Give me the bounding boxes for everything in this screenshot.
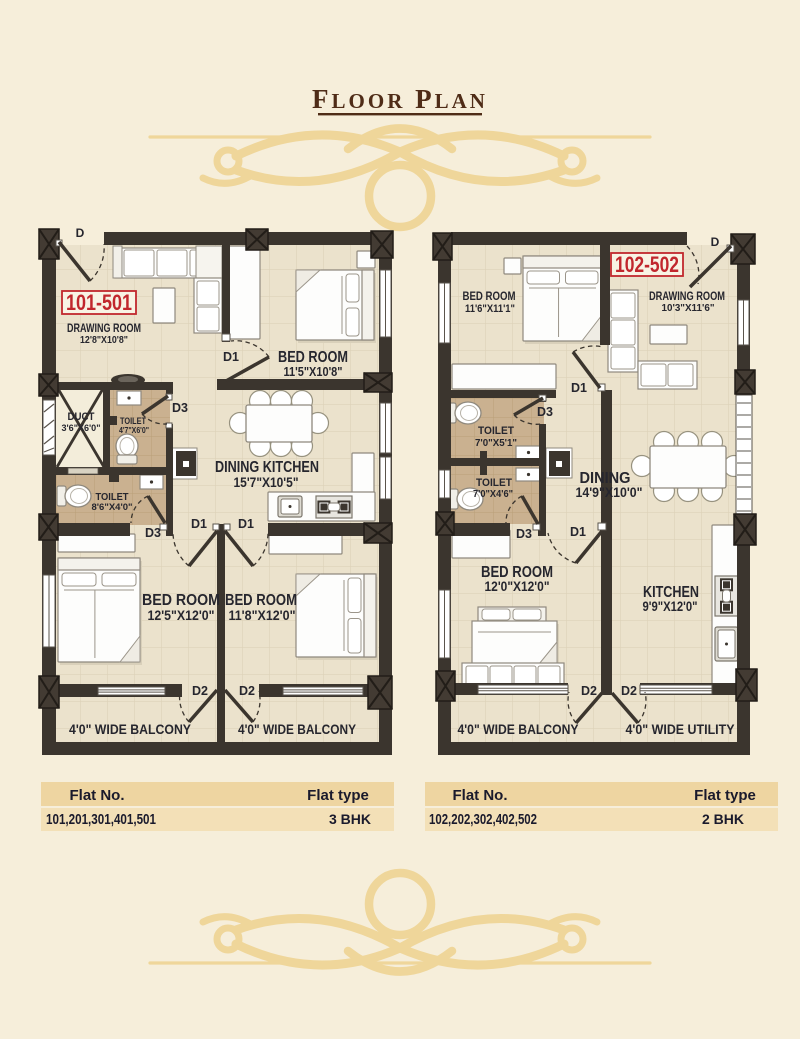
svg-text:D1: D1 [571,381,587,395]
svg-text:D3: D3 [537,405,553,419]
svg-text:102-502: 102-502 [615,252,679,277]
svg-text:FLOOR PLAN: FLOOR PLAN [312,84,488,114]
svg-text:BED ROOM: BED ROOM [142,592,220,609]
svg-text:D1: D1 [238,517,254,531]
svg-text:TOILET: TOILET [478,425,514,437]
svg-text:D1: D1 [191,517,207,531]
svg-text:7'0"X4'6": 7'0"X4'6" [473,489,513,500]
svg-text:2 BHK: 2 BHK [702,811,744,827]
svg-text:D2: D2 [621,684,637,698]
svg-text:DINING KITCHEN: DINING KITCHEN [215,459,319,476]
svg-text:D2: D2 [239,684,255,698]
svg-text:15'7"X10'5": 15'7"X10'5" [234,475,299,490]
svg-text:Flat No.: Flat No. [70,787,125,804]
svg-text:D3: D3 [172,401,188,415]
svg-text:12'5"X12'0": 12'5"X12'0" [148,608,215,623]
svg-text:Flat No.: Flat No. [453,787,508,804]
svg-text:D2: D2 [192,684,208,698]
svg-text:4'0" WIDE BALCONY: 4'0" WIDE BALCONY [458,722,579,737]
svg-text:7'0"X5'1": 7'0"X5'1" [475,438,517,449]
svg-text:4'0" WIDE UTILITY: 4'0" WIDE UTILITY [626,722,735,737]
svg-text:D2: D2 [581,684,597,698]
svg-text:102,202,302,402,502: 102,202,302,402,502 [429,812,537,828]
svg-text:4'7"X6'0": 4'7"X6'0" [119,425,149,435]
svg-text:12'0"X12'0": 12'0"X12'0" [485,579,550,594]
svg-text:12'8"X10'8": 12'8"X10'8" [80,334,128,346]
svg-text:D3: D3 [516,527,532,541]
svg-text:3'6"X6'0": 3'6"X6'0" [62,423,101,434]
svg-text:D: D [711,235,720,249]
svg-text:Flat type: Flat type [694,787,756,804]
svg-text:BED ROOM: BED ROOM [463,289,516,303]
svg-text:Flat type: Flat type [307,787,369,804]
svg-text:8'6"X4'0": 8'6"X4'0" [92,502,133,513]
svg-text:9'9"X12'0": 9'9"X12'0" [643,599,698,614]
svg-text:D1: D1 [223,350,239,364]
svg-text:11'8"X12'0": 11'8"X12'0" [229,608,296,623]
svg-text:BED ROOM: BED ROOM [225,592,297,609]
svg-text:TOILET: TOILET [476,477,512,489]
svg-text:101,201,301,401,501: 101,201,301,401,501 [46,812,156,828]
svg-text:10'3"X11'6": 10'3"X11'6" [662,302,715,314]
svg-text:14'9"X10'0": 14'9"X10'0" [576,485,643,500]
svg-text:3 BHK: 3 BHK [329,811,371,827]
svg-text:DUCT: DUCT [68,411,95,423]
svg-text:D1: D1 [570,525,586,539]
svg-text:101-501: 101-501 [66,290,132,315]
svg-text:11'5"X10'8": 11'5"X10'8" [284,364,343,379]
svg-text:11'6"X11'1": 11'6"X11'1" [465,303,515,315]
svg-text:D: D [76,226,85,240]
svg-text:4'0" WIDE BALCONY: 4'0" WIDE BALCONY [238,722,356,737]
svg-text:D3: D3 [145,526,161,540]
svg-text:4'0" WIDE BALCONY: 4'0" WIDE BALCONY [69,722,191,737]
